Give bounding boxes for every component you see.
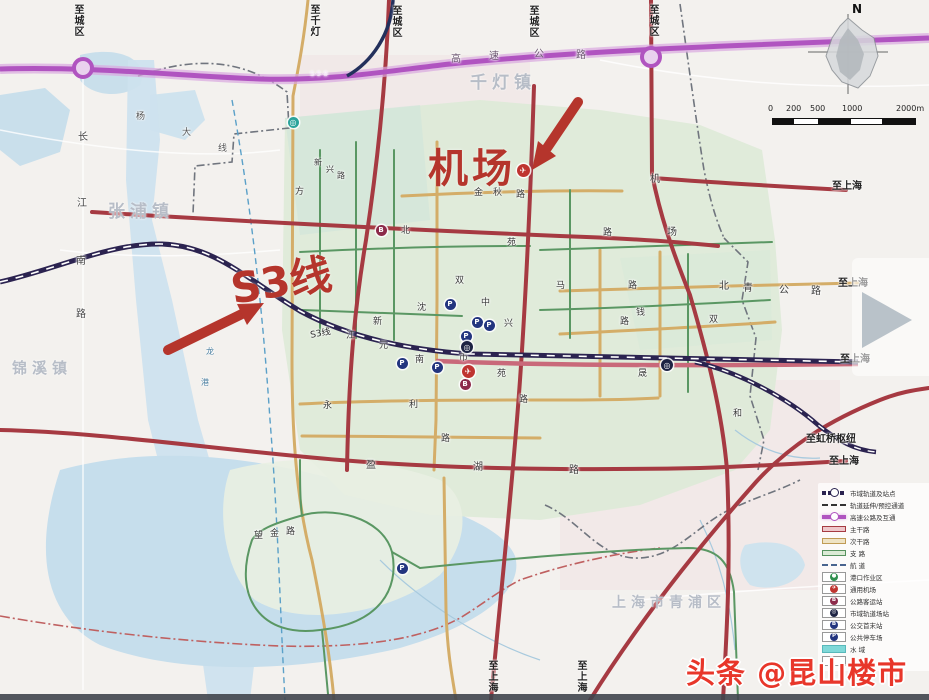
road-name-label: 金: [270, 526, 279, 539]
planning-map: 千灯镇张浦镇锦溪镇上海市青浦区 至城区至千灯至城区至城区至城区至上海至上海至上海…: [0, 0, 929, 700]
legend-label: 轨道延伸/预控通道: [850, 500, 904, 510]
watermark: 头条 @昆山楼市信息: [686, 650, 929, 700]
road-name-label: 南: [415, 352, 424, 365]
road-name-label: 江: [77, 194, 87, 209]
road-name-label: 机: [650, 170, 660, 185]
road-name-label: 公: [534, 45, 544, 60]
legend-dot-icon: ✈: [830, 585, 838, 593]
legend-swatch-hwy-icon: [822, 515, 846, 519]
legend-dot-icon: B: [830, 621, 838, 629]
legend-swatch-box-icon: B: [822, 596, 846, 606]
road-name-label: 路: [628, 278, 637, 291]
legend-swatch-dash-icon: [822, 504, 846, 506]
road-name-label: 新: [373, 314, 382, 327]
legend-label: 主干路: [850, 524, 870, 534]
direction-label: 至上海: [573, 660, 588, 693]
road-name-label: 公: [779, 281, 789, 296]
direction-label: 至城区: [70, 4, 85, 37]
legend-row: 航 道: [822, 559, 929, 571]
scale-bar-segments: [772, 118, 916, 125]
direction-label: 至城区: [525, 5, 540, 38]
airport-marker[interactable]: ✈: [462, 365, 475, 378]
road-name-label: 路: [76, 305, 86, 320]
legend-row: 支 路: [822, 547, 929, 559]
road-name-label: 晟: [638, 366, 647, 379]
parking-marker[interactable]: P: [461, 331, 472, 342]
road-name-label: 高: [451, 50, 461, 65]
rail-station-marker[interactable]: ◎: [661, 359, 673, 371]
road-name-label: 龙: [206, 346, 214, 357]
legend-row: B公交首末站: [822, 619, 929, 631]
road-name-label: 兴: [326, 164, 334, 175]
direction-label: 至城区: [388, 5, 403, 38]
scale-bar: 020050010002000m: [768, 104, 918, 132]
road-name-label: 江: [346, 328, 355, 341]
legend-row: 高速公路及互通: [822, 511, 929, 523]
road-name-label: 港: [201, 377, 209, 388]
road-name-label: 和: [733, 406, 742, 419]
direction-label: 至虹桥枢纽: [806, 430, 856, 445]
legend-row: B公路客运站: [822, 595, 929, 607]
legend-label: 次干路: [850, 536, 870, 546]
legend-row: 市域轨道及站点: [822, 487, 929, 499]
road-name-label: 路: [603, 225, 612, 238]
legend-row: 主干路: [822, 523, 929, 535]
road-name-label: 新: [314, 157, 322, 168]
road-name-label: 速: [489, 47, 499, 62]
town-label: 千灯镇: [470, 68, 536, 93]
airport-marker[interactable]: ✈: [517, 164, 530, 177]
bottom-edge-strip: [0, 694, 929, 700]
road-name-label: 钱: [636, 305, 645, 318]
road-name-label: 利: [409, 397, 418, 410]
airport-annotation: 机场: [428, 136, 516, 194]
scale-tick-label: 200: [786, 104, 801, 113]
road-name-label: 路: [569, 461, 579, 476]
road-name-label: 路: [811, 282, 821, 297]
legend-label: 公路客运站: [850, 596, 883, 606]
road-name-label: 路: [441, 431, 450, 444]
legend-swatch-box-icon: P: [822, 632, 846, 642]
road-name-label: 路: [286, 524, 295, 537]
road-name-label: 路: [576, 46, 586, 61]
road-name-label: 永: [323, 398, 332, 411]
road-name-label: 苑: [507, 235, 516, 248]
legend-swatch-red-icon: [822, 526, 846, 532]
road-name-label: 兴: [504, 316, 513, 329]
legend-row: 轨道延伸/预控通道: [822, 499, 929, 511]
legend-dot-icon: ◎: [830, 609, 838, 617]
road-name-label: 大: [182, 125, 191, 138]
legend-row: ✈通用机场: [822, 583, 929, 595]
direction-label: 至上海: [832, 177, 862, 192]
road-name-label: 路: [620, 314, 629, 327]
road-name-label: 湖: [473, 458, 483, 473]
legend-label: 高速公路及互通: [850, 512, 896, 522]
direction-label: 至城区: [645, 4, 660, 37]
legend-swatch-box-icon: ●: [822, 572, 846, 582]
road-name-label: 元: [379, 338, 388, 351]
road-name-label: 方: [295, 184, 304, 197]
legend-label: 市域轨道场站: [850, 608, 889, 618]
next-arrow-icon[interactable]: [862, 292, 912, 348]
bus-station-marker[interactable]: B: [376, 225, 387, 236]
scale-tick-label: 1000: [842, 104, 862, 113]
direction-label: 至上海: [484, 660, 499, 693]
road-name-label: 望: [254, 528, 263, 541]
scale-tick-label: 2000m: [896, 104, 924, 113]
bus-station-marker[interactable]: B: [460, 379, 471, 390]
road-name-label: 中: [481, 295, 490, 308]
parking-marker[interactable]: P: [397, 563, 408, 574]
rail-station-marker[interactable]: ◎: [461, 341, 473, 353]
metro-station-marker[interactable]: ◎: [288, 117, 299, 128]
legend-label: 港口作业区: [850, 572, 883, 582]
legend-label: 公交首末站: [850, 620, 883, 630]
legend-swatch-canal-icon: [822, 564, 846, 566]
legend-swatch-box-icon: ✈: [822, 584, 846, 594]
legend-swatch-rail-icon: [822, 491, 846, 495]
road-name-label: 场: [667, 223, 677, 238]
legend-row: ●港口作业区: [822, 571, 929, 583]
road-name-label: 沈: [417, 300, 426, 313]
road-name-label: 双: [709, 312, 718, 325]
legend-panel: 市域轨道及站点轨道延伸/预控通道高速公路及互通主干路次干路支 路航 道●港口作业…: [818, 483, 929, 671]
legend-swatch-box-icon: B: [822, 620, 846, 630]
parking-marker[interactable]: P: [472, 317, 483, 328]
road-name-label: 马: [556, 278, 565, 291]
legend-dot-icon: B: [830, 597, 838, 605]
legend-row: 次干路: [822, 535, 929, 547]
road-name-label: 苑: [497, 366, 506, 379]
legend-swatch-green-icon: [822, 550, 846, 556]
road-name-label: S·5·8: [310, 70, 328, 78]
compass-north-label: N: [852, 2, 862, 16]
scale-tick-label: 500: [810, 104, 825, 113]
road-name-label: 双: [455, 273, 464, 286]
legend-label: 通用机场: [850, 584, 876, 594]
legend-dot-icon: P: [830, 633, 838, 641]
parking-marker[interactable]: P: [432, 362, 443, 373]
road-name-label: 北: [719, 277, 729, 292]
legend-dot-icon: ●: [830, 573, 838, 581]
road-name-label: 杨: [136, 109, 145, 122]
road-name-label: 北: [401, 223, 410, 236]
town-label: 张浦镇: [108, 197, 174, 222]
legend-row: ◎市域轨道场站: [822, 607, 929, 619]
town-label: 上海市青浦区: [612, 592, 726, 612]
legend-label: 支 路: [850, 548, 865, 558]
parking-marker[interactable]: P: [484, 320, 495, 331]
road-name-label: 路: [337, 170, 345, 181]
parking-marker[interactable]: P: [445, 299, 456, 310]
road-name-label: 路: [519, 392, 528, 405]
legend-label: 市域轨道及站点: [850, 488, 896, 498]
road-name-label: 线: [218, 141, 227, 154]
direction-label: 至上海: [829, 452, 859, 467]
road-name-label: 长: [78, 128, 88, 143]
legend-label: 航 道: [850, 560, 865, 570]
town-label: 锦溪镇: [12, 357, 72, 378]
road-name-label: 盈: [366, 456, 376, 471]
scale-tick-label: 0: [768, 104, 773, 113]
legend-label: 公共停车场: [850, 632, 883, 642]
road-name-label: 南: [76, 252, 86, 267]
direction-label: 至千灯: [306, 4, 321, 37]
parking-marker[interactable]: P: [397, 358, 408, 369]
legend-swatch-box-icon: ◎: [822, 608, 846, 618]
legend-swatch-tan-icon: [822, 538, 846, 544]
road-name-label: 路: [516, 187, 525, 200]
legend-row: P公共停车场: [822, 631, 929, 643]
road-name-label: 青: [743, 279, 753, 294]
